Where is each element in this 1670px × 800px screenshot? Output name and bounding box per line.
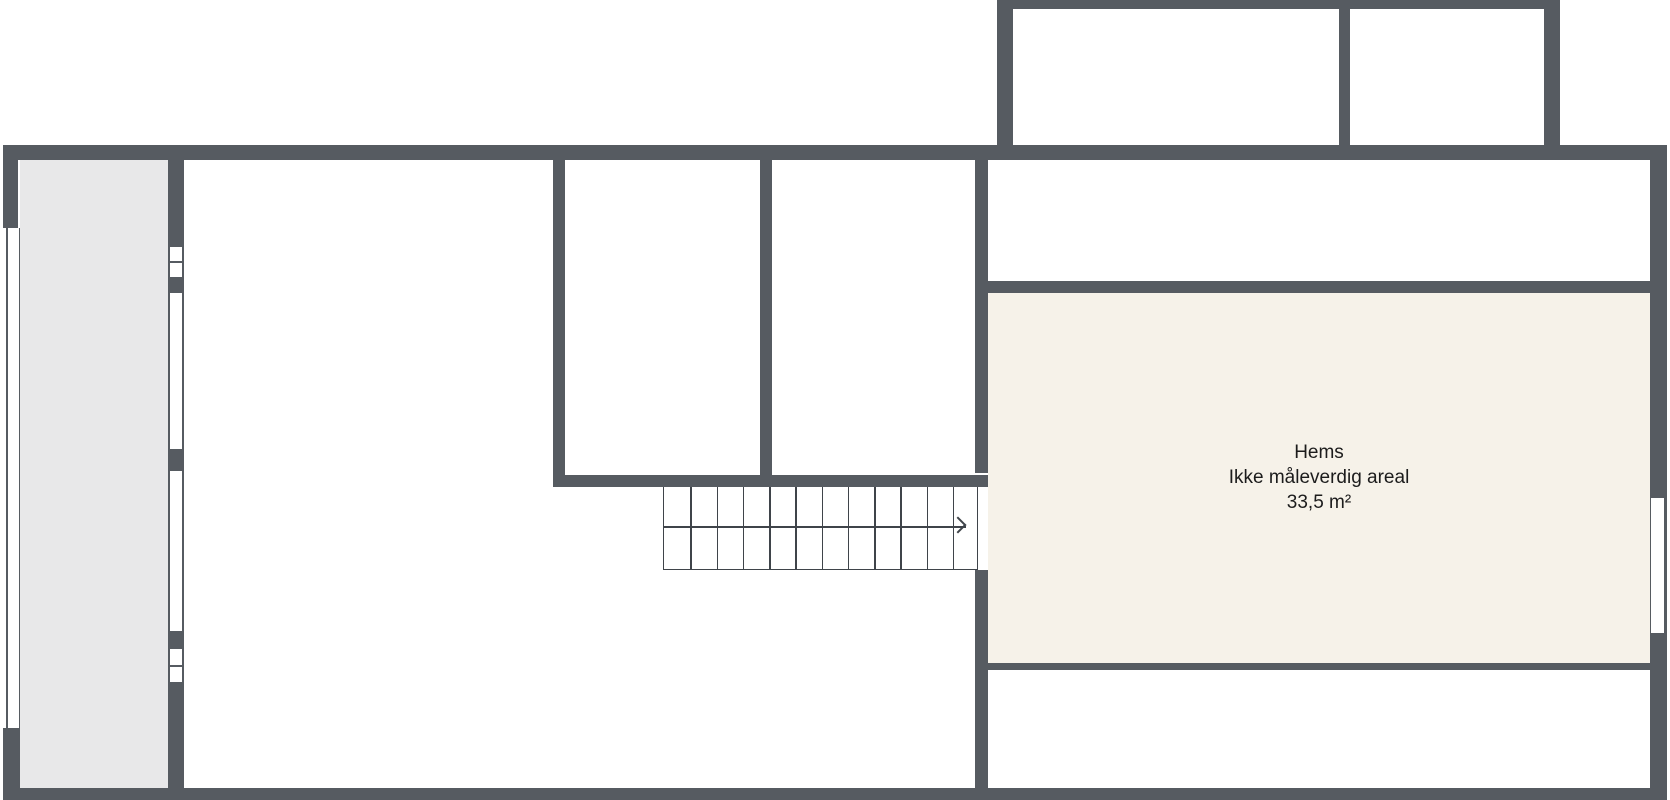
floor-plan: Hems Ikke måleverdig areal 33,5 m² [0,0,1670,800]
exterior-right-wall [1650,160,1667,788]
gray-room-wall-segment [168,683,184,788]
window-mullion [170,261,182,263]
balcony-right-wall [1544,0,1560,146]
gray-room-wall-segment [168,160,184,246]
hems-top-wall [988,281,1650,293]
stair-tread-line [717,487,719,569]
room1-left-wall [553,160,565,487]
gray-room-window-small-top [168,246,184,278]
hems-bottom-wall [988,663,1650,670]
stair-direction-line [663,526,966,528]
stair-tread-line [795,487,797,569]
room-area: 33,5 m² [988,490,1650,515]
stair-tread-line [848,487,850,569]
window-mullion [170,665,182,667]
stair-tread-line [874,487,876,569]
exterior-bottom-wall [3,788,1667,800]
left-facade-window [6,228,21,728]
room-name: Hems [988,440,1650,465]
gray-room-wall-segment [168,632,184,648]
gray-room-area [20,160,168,788]
gray-room-window-long-lower [168,470,184,632]
room-note: Ikke måleverdig areal [988,465,1650,490]
room-divider-wall [760,160,772,487]
gray-room-window-small-bottom [168,648,184,683]
hems-left-wall-upper [975,160,988,473]
stair-tread-line [690,487,692,569]
exterior-left-wall-upper [3,160,18,228]
stair-tread-line [900,487,902,569]
staircase [663,487,978,570]
balcony-left-wall [997,0,1013,146]
balcony-divider-wall [1339,0,1350,146]
stair-tread-line [927,487,929,569]
balcony-top-wall [997,0,1560,9]
right-facade-window [1649,498,1666,633]
stair-tread-line [769,487,771,569]
hems-room-label: Hems Ikke måleverdig areal 33,5 m² [988,440,1650,515]
stair-tread-line [743,487,745,569]
gray-room-wall-segment [168,278,184,292]
gray-room-wall-segment [168,450,184,470]
hems-left-wall-lower [975,570,988,788]
stair-tread-line [822,487,824,569]
exterior-top-wall [3,145,1667,160]
gray-room-window-long-upper [168,292,184,450]
rooms-bottom-wall [553,475,988,487]
